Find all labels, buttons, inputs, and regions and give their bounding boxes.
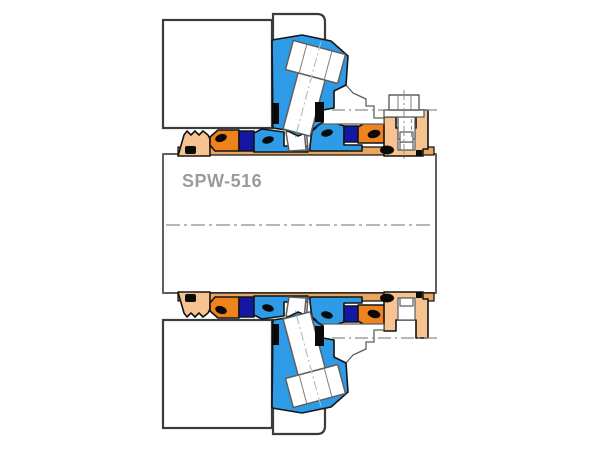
housing-box [163,20,272,128]
model-label: SPW-516 [182,171,262,191]
seal-cross-section-diagram: SPW-516 [0,0,600,450]
sleeve-o-ring [185,146,196,154]
upper-half-assembly [163,14,438,156]
gland-o-ring [380,146,394,155]
elastomer-right [344,126,358,142]
elastomer-left [239,131,254,151]
drive-pin-left [272,103,279,124]
shaft: SPW-516 [163,154,436,293]
stud-slot-step [400,142,413,150]
seal-diagram-page: SPW-516 [0,0,600,450]
gland-corner-seal [416,150,422,156]
lower-half-assembly [163,292,438,434]
drive-pin-right [315,102,324,122]
seat-ring-left [210,130,239,151]
